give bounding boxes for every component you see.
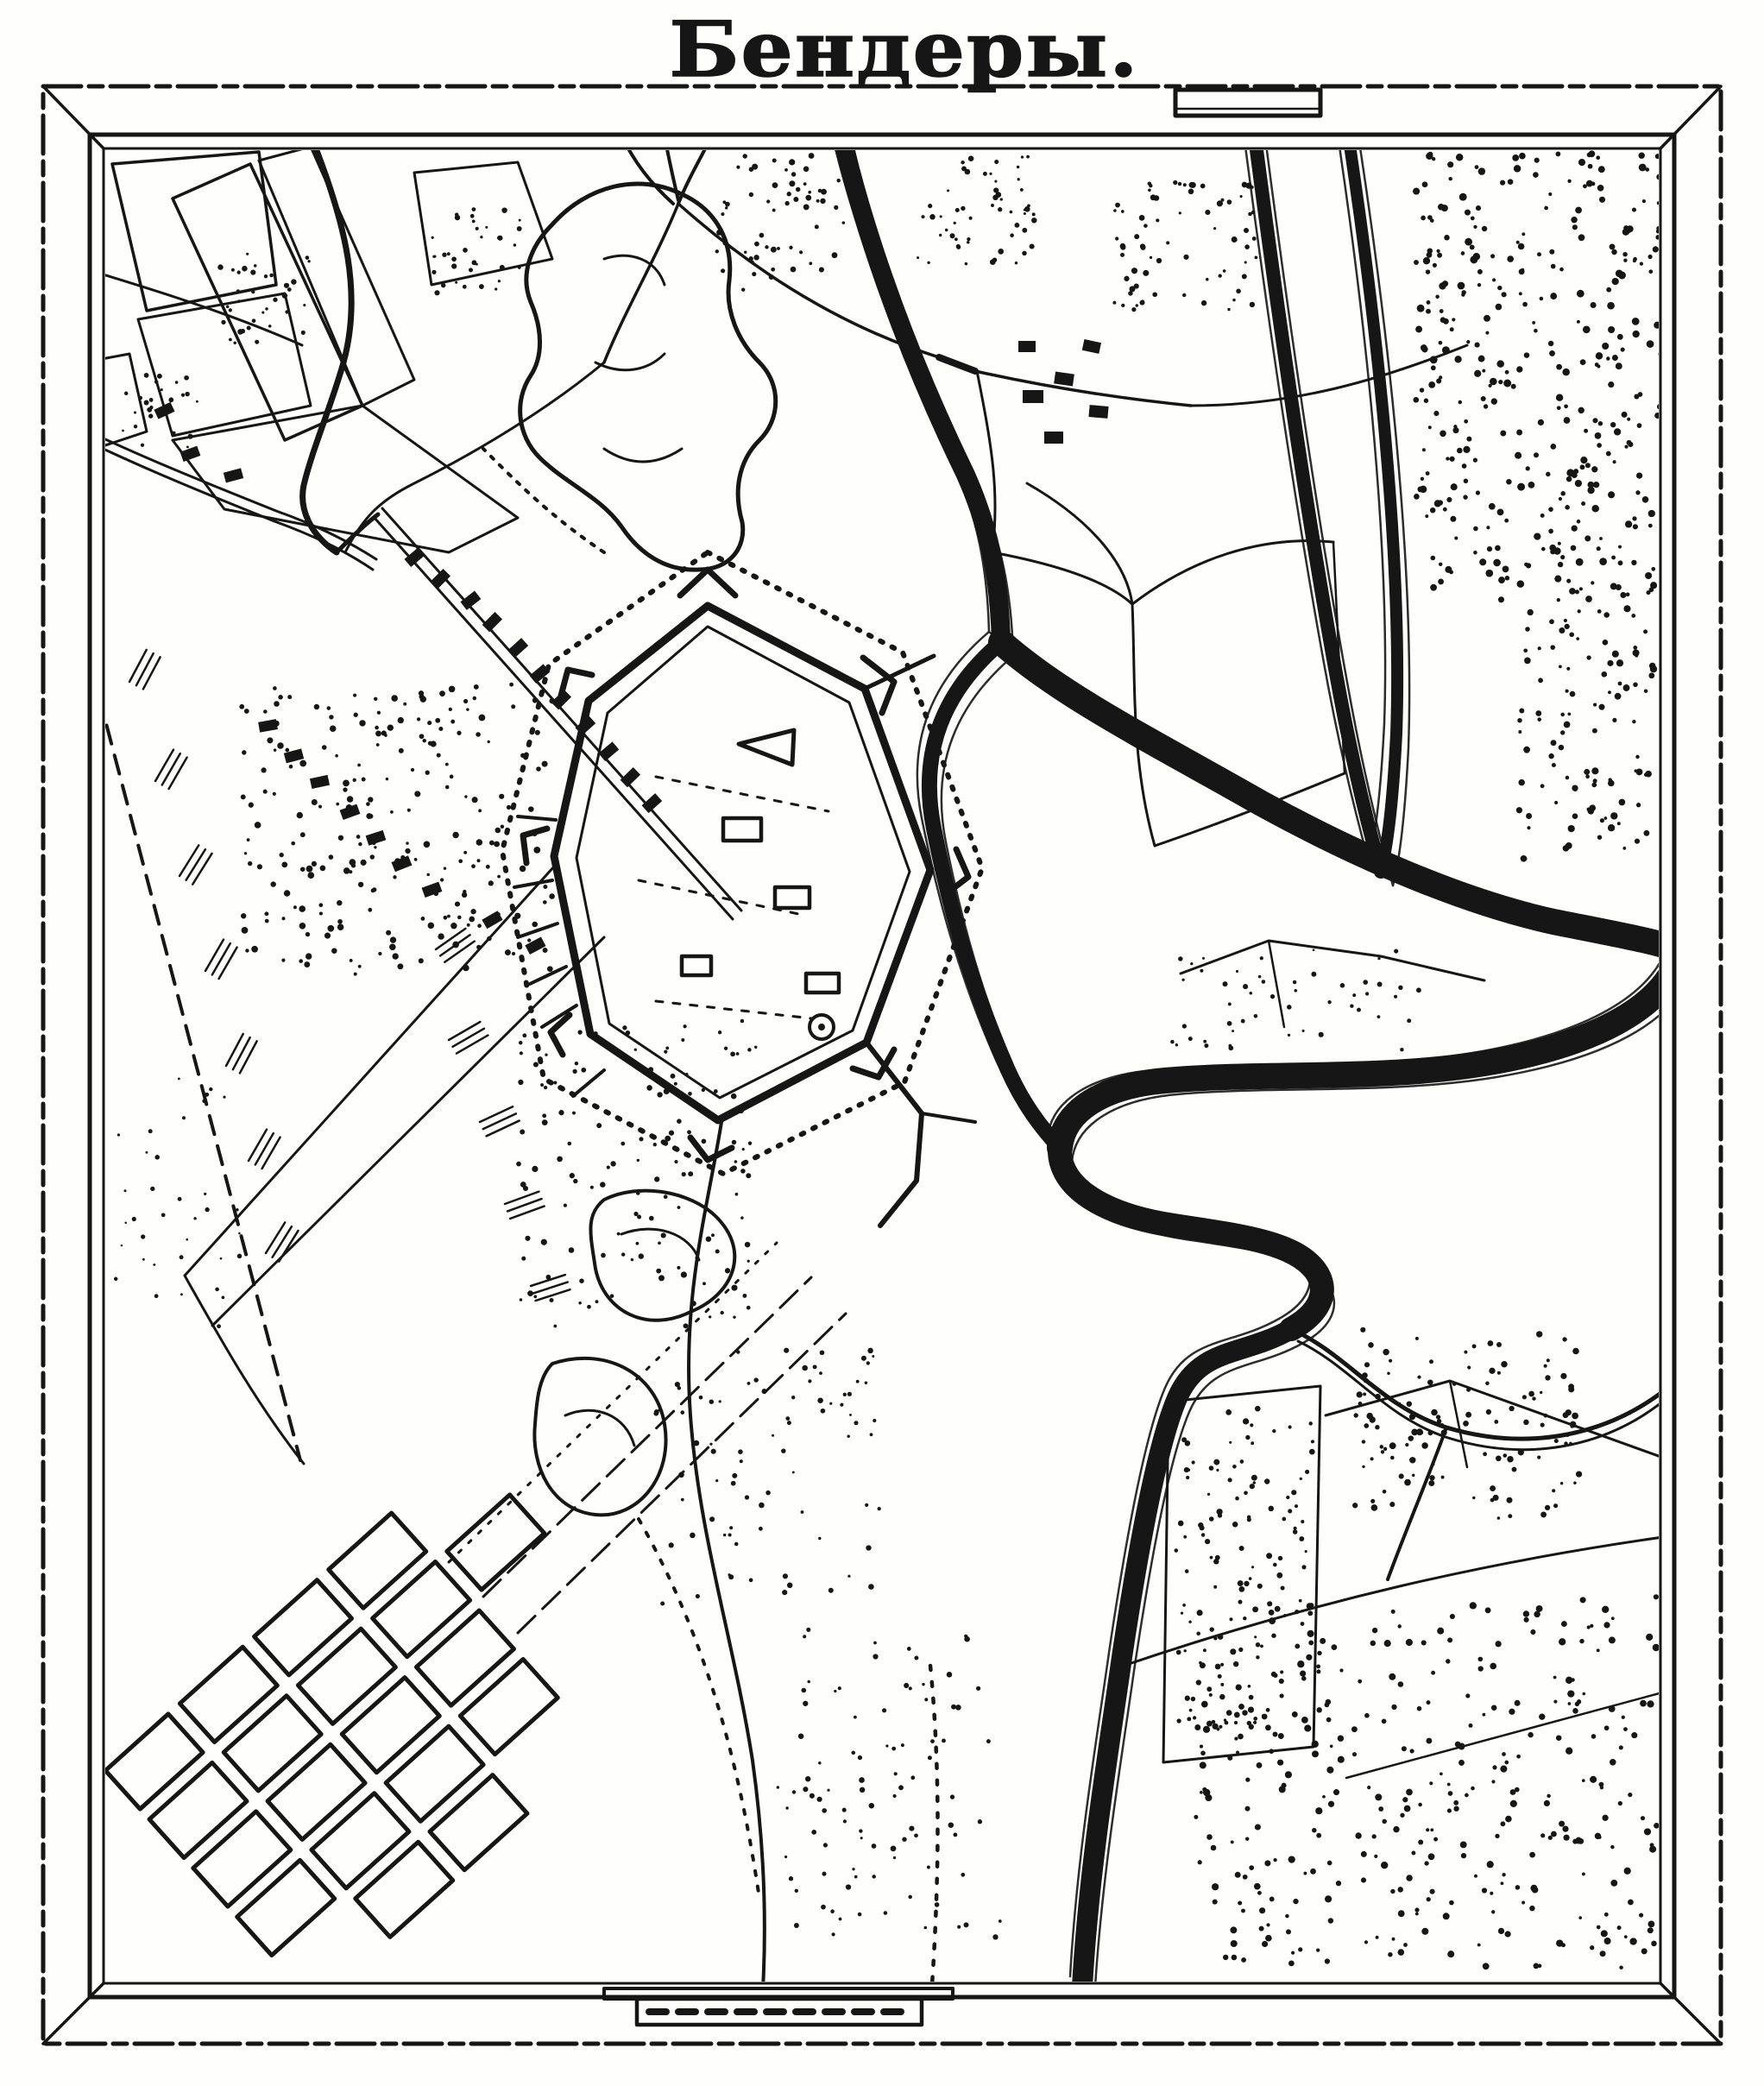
hachure bbox=[219, 948, 237, 979]
stipple-dot bbox=[306, 953, 312, 959]
stipple-dot bbox=[660, 1601, 665, 1605]
stipple-dot bbox=[486, 865, 490, 869]
stipple-dot bbox=[1309, 1449, 1315, 1455]
stipple-dot bbox=[1587, 482, 1594, 488]
stipple-dot bbox=[1273, 1563, 1277, 1567]
stipple-dot bbox=[808, 1379, 811, 1383]
stipple-dot bbox=[1500, 1766, 1507, 1773]
stipple-dot bbox=[1351, 1726, 1358, 1732]
stipple-dot bbox=[1632, 318, 1640, 325]
stipple-dot bbox=[1619, 799, 1626, 806]
stipple-dot bbox=[772, 182, 778, 188]
stipple-dot bbox=[653, 1143, 657, 1146]
stipple-dot bbox=[1586, 655, 1591, 659]
stipple-dot bbox=[1198, 1860, 1202, 1864]
stipple-dot bbox=[1240, 195, 1243, 198]
stipple-dot bbox=[1566, 476, 1572, 482]
stipple-dot bbox=[654, 1176, 659, 1182]
stipple-dot bbox=[1026, 155, 1030, 159]
stipple-dot bbox=[1209, 1465, 1214, 1471]
stipple-dot bbox=[596, 1123, 602, 1128]
stipple-dot bbox=[307, 872, 314, 879]
stipple-dot bbox=[1466, 340, 1470, 343]
stipple-dot bbox=[1553, 547, 1561, 555]
stipple-dot bbox=[1554, 576, 1561, 583]
stipple-dot bbox=[1478, 1666, 1484, 1671]
stipple-dot bbox=[682, 1172, 686, 1176]
stipple-dot bbox=[1411, 1429, 1418, 1436]
stipple-dot bbox=[1596, 352, 1603, 359]
stipple-dot bbox=[803, 1701, 808, 1706]
stipple-dot bbox=[1559, 745, 1565, 751]
stipple-dot bbox=[1576, 558, 1584, 566]
stipple-dot bbox=[148, 1129, 153, 1133]
stipple-dot bbox=[1238, 1600, 1242, 1604]
stipple-dot bbox=[961, 206, 965, 211]
stipple-dot bbox=[1627, 418, 1630, 421]
stipple-dot bbox=[1313, 948, 1315, 951]
stipple-dot bbox=[1486, 1409, 1491, 1415]
stipple-dot bbox=[141, 444, 144, 447]
stipple-dot bbox=[1269, 1617, 1276, 1624]
stipple-dot bbox=[132, 1217, 136, 1221]
stipple-dot bbox=[1572, 224, 1578, 230]
stipple-dot bbox=[688, 1092, 692, 1096]
stipple-dot bbox=[1431, 1671, 1435, 1675]
hachure bbox=[136, 653, 154, 685]
stipple-dot bbox=[1623, 259, 1627, 262]
stipple-dot bbox=[1597, 185, 1604, 192]
stipple-dot bbox=[1526, 813, 1532, 819]
stipple-dot bbox=[1295, 1643, 1300, 1648]
stipple-dot bbox=[336, 803, 339, 806]
stipple-dot bbox=[318, 903, 323, 907]
stipple-dot bbox=[769, 274, 774, 280]
stipple-dot bbox=[633, 1212, 638, 1216]
stipple-dot bbox=[785, 1416, 790, 1421]
town-block bbox=[342, 1678, 439, 1773]
stipple-dot bbox=[278, 695, 283, 700]
stipple-dot bbox=[1576, 1471, 1582, 1477]
stipple-dot bbox=[1404, 1806, 1411, 1812]
stipple-dot bbox=[1466, 138, 1471, 142]
stipple-dot bbox=[777, 1786, 779, 1788]
stipple-dot bbox=[1648, 1921, 1655, 1928]
stipple-dot bbox=[350, 959, 353, 962]
stipple-dot bbox=[1303, 1872, 1307, 1875]
stipple-dot bbox=[671, 1074, 676, 1079]
stipple-dot bbox=[1491, 1780, 1495, 1783]
stipple-dot bbox=[1449, 126, 1453, 130]
stipple-dot bbox=[1584, 429, 1588, 433]
stipple-dot bbox=[1621, 348, 1625, 352]
stipple-dot bbox=[1597, 546, 1601, 551]
stipple-dot bbox=[1267, 1601, 1272, 1606]
stipple-dot bbox=[872, 1875, 875, 1878]
stipple-dot bbox=[1576, 637, 1579, 640]
stipple-dot bbox=[1528, 1732, 1533, 1737]
stipple-dot bbox=[1603, 612, 1610, 618]
stipple-dot bbox=[914, 1833, 918, 1837]
stipple-dot bbox=[1603, 1622, 1610, 1628]
stipple-dot bbox=[1000, 198, 1003, 200]
stipple-dot bbox=[1216, 1469, 1219, 1472]
stipple-dot bbox=[939, 234, 942, 236]
stipple-dot bbox=[648, 1067, 653, 1072]
stipple-dot bbox=[1203, 1726, 1210, 1733]
stipple-dot bbox=[1271, 1633, 1276, 1637]
stipple-dot bbox=[1266, 1708, 1270, 1712]
stipple-dot bbox=[449, 686, 456, 693]
stipple-dot bbox=[1564, 404, 1568, 408]
stipple-dot bbox=[1428, 1853, 1435, 1860]
stipple-dot bbox=[244, 709, 249, 714]
stipple-dot bbox=[1250, 1423, 1253, 1427]
stipple-dot bbox=[384, 734, 387, 736]
hachure bbox=[205, 940, 224, 971]
stipple-dot bbox=[1618, 1801, 1622, 1806]
stipple-dot bbox=[1376, 1936, 1379, 1939]
stipple-dot bbox=[1461, 251, 1465, 255]
stipple-dot bbox=[1407, 1018, 1411, 1023]
stipple-dot bbox=[795, 1889, 798, 1893]
stipple-dot bbox=[1612, 355, 1618, 361]
stipple-dot bbox=[471, 864, 476, 868]
stipple-dot bbox=[1648, 524, 1653, 528]
stipple-dot bbox=[1518, 243, 1525, 250]
stipple-dot bbox=[1580, 1597, 1586, 1603]
stipple-dot bbox=[1371, 1504, 1378, 1511]
stipple-dot bbox=[269, 274, 274, 278]
stipple-dot bbox=[1648, 255, 1653, 259]
stipple-dot bbox=[1288, 1425, 1292, 1428]
stipple-dot bbox=[694, 1440, 700, 1446]
stipple-dot bbox=[1537, 252, 1541, 256]
stipple-dot bbox=[914, 1656, 918, 1661]
stipple-dot bbox=[1516, 807, 1522, 813]
stipple-dot bbox=[1491, 398, 1497, 404]
stipple-dot bbox=[1291, 1951, 1295, 1955]
stipple-dot bbox=[1651, 567, 1655, 571]
stipple-dot bbox=[1552, 763, 1556, 767]
stipple-dot bbox=[955, 208, 960, 212]
stipple-dot bbox=[1238, 1648, 1243, 1652]
stipple-dot bbox=[839, 1918, 842, 1921]
road bbox=[185, 1276, 304, 1464]
stipple-dot bbox=[1262, 1941, 1268, 1947]
stipple-dot bbox=[522, 1033, 526, 1037]
stipple-dot bbox=[1121, 304, 1125, 307]
stipple-dot bbox=[1641, 1948, 1647, 1954]
field-boundary bbox=[173, 406, 518, 552]
stipple-dot bbox=[821, 189, 827, 195]
stipple-dot bbox=[1490, 1892, 1493, 1895]
stipple-dot bbox=[501, 825, 504, 829]
stipple-dot bbox=[428, 741, 432, 746]
stipple-dot bbox=[1472, 1344, 1477, 1348]
stipple-dot bbox=[424, 841, 431, 848]
stipple-dot bbox=[830, 1909, 835, 1913]
hachure bbox=[279, 1231, 298, 1262]
stipple-dot bbox=[242, 927, 249, 934]
stipple-dot bbox=[1247, 1516, 1251, 1520]
stipple-dot bbox=[1589, 804, 1596, 811]
stipple-dot bbox=[732, 1473, 737, 1478]
stipple-dot bbox=[1176, 1650, 1181, 1655]
stipple-dot bbox=[1607, 660, 1613, 666]
stipple-dot bbox=[1540, 1511, 1547, 1517]
stipple-dot bbox=[965, 169, 971, 175]
stipple-dot bbox=[1234, 1711, 1240, 1717]
stipple-dot bbox=[1413, 397, 1419, 403]
stipple-dot bbox=[587, 1305, 591, 1309]
stipple-dot bbox=[910, 1775, 915, 1780]
stipple-dot bbox=[878, 1507, 881, 1510]
stipple-cluster bbox=[1112, 180, 1257, 312]
stipple-dot bbox=[1597, 609, 1602, 614]
stipple-dot bbox=[1370, 1499, 1375, 1503]
stipple-dot bbox=[749, 256, 753, 261]
stipple-dot bbox=[434, 892, 438, 896]
stipple-dot bbox=[1319, 1032, 1324, 1037]
stipple-dot bbox=[1560, 1482, 1563, 1484]
stipple-dot bbox=[1502, 1873, 1505, 1876]
stipple-dot bbox=[1185, 1569, 1189, 1573]
hachure bbox=[273, 1226, 292, 1257]
field-line bbox=[1132, 541, 1333, 604]
fields-east bbox=[977, 371, 1484, 1027]
stipple-dot bbox=[1466, 437, 1471, 442]
stipple-dot bbox=[432, 255, 435, 258]
stipple-dot bbox=[1192, 1460, 1195, 1464]
road bbox=[975, 371, 1191, 406]
stipple-dot bbox=[1505, 1816, 1512, 1823]
stipple-dot bbox=[1525, 627, 1530, 632]
stipple-dot bbox=[1354, 1413, 1358, 1417]
stipple-dot bbox=[513, 243, 517, 247]
stipple-dot bbox=[1582, 1872, 1585, 1875]
stipple-dot bbox=[511, 704, 515, 709]
stipple-dot bbox=[1442, 346, 1450, 354]
stipple-dot bbox=[723, 1534, 726, 1536]
stipple-dot bbox=[1288, 1509, 1292, 1513]
stipple-dot bbox=[1181, 979, 1184, 981]
stipple-dot bbox=[1441, 1429, 1447, 1435]
stipple-dot bbox=[1557, 598, 1560, 602]
stipple-dot bbox=[144, 400, 149, 406]
stipple-dot bbox=[1578, 159, 1585, 166]
stipple-dot bbox=[1550, 444, 1556, 450]
stipple-dot bbox=[1431, 1409, 1438, 1416]
stipple-dot bbox=[444, 916, 448, 920]
field-boundary bbox=[414, 162, 552, 285]
stipple-dot bbox=[930, 1739, 935, 1743]
stipple-dot bbox=[1320, 1638, 1326, 1644]
stipple-dot bbox=[1249, 1724, 1254, 1730]
stipple-dot bbox=[1184, 1649, 1187, 1652]
stipple-dot bbox=[532, 1166, 538, 1172]
stipple-dot bbox=[528, 806, 534, 812]
stipple-dot bbox=[202, 1099, 206, 1103]
stipple-dot bbox=[1463, 495, 1467, 499]
stipple-dot bbox=[237, 299, 241, 303]
stipple-dot bbox=[1624, 1868, 1631, 1875]
suburb-west bbox=[154, 402, 662, 955]
stipple-dot bbox=[1577, 520, 1581, 524]
stipple-dot bbox=[1585, 463, 1591, 468]
stipple-dot bbox=[1364, 1423, 1369, 1428]
stipple-dot bbox=[1615, 693, 1622, 700]
stipple-dot bbox=[782, 1590, 787, 1595]
fortress-buildings bbox=[639, 730, 839, 1039]
stipple-dot bbox=[1381, 1450, 1384, 1453]
stipple-dot bbox=[1412, 1474, 1414, 1477]
stipple-dot bbox=[1260, 1645, 1263, 1648]
stipple-dot bbox=[1316, 1664, 1320, 1668]
stipple-dot bbox=[617, 1232, 621, 1236]
stipple-dot bbox=[1496, 360, 1503, 367]
stipple-dot bbox=[1497, 508, 1504, 515]
stipple-dot bbox=[1139, 215, 1145, 221]
stipple-dot bbox=[1505, 576, 1510, 581]
stipple-dot bbox=[1617, 334, 1623, 340]
house bbox=[180, 446, 201, 462]
stipple-dot bbox=[1294, 1527, 1297, 1530]
stipple-dot bbox=[147, 407, 152, 413]
stipple-dot bbox=[1223, 1955, 1228, 1960]
stipple-dot bbox=[784, 168, 788, 172]
stipple-dot bbox=[1275, 1606, 1281, 1612]
stipple-dot bbox=[1186, 1476, 1189, 1479]
stipple-dot bbox=[784, 1856, 787, 1858]
stipple-dot bbox=[815, 224, 819, 229]
stipple-dot bbox=[1664, 184, 1670, 190]
stipple-dot bbox=[1030, 243, 1035, 249]
stipple-dot bbox=[1616, 269, 1623, 277]
stipple-dot bbox=[873, 1654, 878, 1659]
stipple-dot bbox=[735, 1193, 739, 1196]
stipple-dot bbox=[711, 1233, 715, 1237]
stipple-dot bbox=[329, 854, 334, 860]
stipple-dot bbox=[499, 794, 504, 799]
stipple-dot bbox=[1420, 388, 1424, 392]
stipple-dot bbox=[1536, 1605, 1543, 1612]
stipple-dot bbox=[487, 936, 492, 942]
ravine-squiggle bbox=[604, 255, 665, 285]
stipple-dot bbox=[1571, 217, 1577, 223]
stipple-dot bbox=[1564, 1835, 1570, 1841]
house bbox=[1044, 432, 1063, 444]
stipple-dot bbox=[419, 734, 425, 739]
stipple-dot bbox=[1457, 448, 1463, 454]
hachure-group bbox=[226, 1034, 257, 1074]
stipple-dot bbox=[1241, 1957, 1246, 1963]
stipple-dot bbox=[1654, 1594, 1659, 1599]
stipple-dot bbox=[265, 307, 268, 310]
stipple-dot bbox=[1571, 1678, 1574, 1681]
stipple-dot bbox=[1548, 192, 1552, 196]
town-block bbox=[386, 1726, 483, 1821]
stipple-dot bbox=[1287, 1005, 1292, 1010]
stipple-dot bbox=[1219, 274, 1222, 277]
stipple-dot bbox=[420, 696, 427, 703]
stipple-dot bbox=[1204, 1043, 1208, 1048]
stipple-dot bbox=[1221, 199, 1225, 202]
stipple-dot bbox=[527, 938, 531, 942]
stipple-dot bbox=[1017, 166, 1019, 168]
stipple-dot bbox=[533, 1295, 537, 1299]
stipple-dot bbox=[1515, 452, 1521, 459]
stipple-dot bbox=[1512, 154, 1519, 161]
hachure-group bbox=[180, 845, 212, 884]
stipple-dot bbox=[472, 207, 476, 211]
riverside-wall bbox=[922, 1113, 975, 1122]
stipple-dot bbox=[501, 207, 507, 212]
stipple-dot bbox=[961, 161, 964, 164]
stipple-dot bbox=[1215, 1664, 1221, 1670]
stipple-dot bbox=[739, 1108, 744, 1113]
stipple-dot bbox=[463, 965, 469, 972]
stipple-dot bbox=[1262, 980, 1266, 984]
stipple-dot bbox=[473, 696, 476, 700]
stipple-dot bbox=[337, 919, 343, 924]
stipple-dot bbox=[358, 842, 362, 846]
stipple-dot bbox=[734, 1160, 738, 1163]
stipple-dot bbox=[961, 1873, 965, 1877]
stipple-dot bbox=[785, 1806, 788, 1809]
stipple-dot bbox=[1667, 806, 1671, 810]
stipple-dot bbox=[1486, 526, 1490, 529]
stipple-dot bbox=[532, 922, 538, 928]
stipple-dot bbox=[1503, 1453, 1508, 1458]
stipple-dot bbox=[568, 1142, 572, 1146]
stipple-dot bbox=[1560, 730, 1565, 734]
stipple-dot bbox=[1193, 1716, 1196, 1719]
stipple-dot bbox=[397, 963, 403, 969]
stipple-dot bbox=[1301, 1622, 1305, 1626]
stipple-dot bbox=[354, 713, 358, 717]
stipple-dot bbox=[1569, 1442, 1572, 1446]
stipple-dot bbox=[976, 1686, 980, 1691]
stipple-dot bbox=[375, 730, 381, 736]
river-channels bbox=[834, 97, 1681, 1987]
stipple-cluster bbox=[1413, 120, 1677, 603]
stipple-dot bbox=[765, 245, 768, 249]
stipple-dot bbox=[1617, 822, 1621, 825]
stipple-dot bbox=[1262, 1714, 1268, 1720]
stipple-dot bbox=[664, 1050, 667, 1054]
stipple-dot bbox=[882, 1708, 886, 1712]
stipple-dot bbox=[772, 1434, 774, 1437]
stipple-dot bbox=[1458, 282, 1465, 290]
stipple-dot bbox=[285, 748, 289, 753]
stipple-dot bbox=[1206, 1834, 1213, 1840]
stipple-dot bbox=[577, 1030, 582, 1034]
stipple-dot bbox=[860, 1837, 863, 1839]
stipple-dot bbox=[740, 1459, 743, 1463]
stipple-dot bbox=[1405, 1443, 1408, 1446]
stipple-dot bbox=[297, 812, 303, 818]
stipple-dot bbox=[1299, 1536, 1304, 1541]
stipple-dot bbox=[1523, 747, 1530, 753]
stipple-dot bbox=[1370, 1457, 1374, 1460]
stipple-dot bbox=[1375, 1793, 1382, 1800]
stipple-dot bbox=[1534, 533, 1540, 539]
stipple-dot bbox=[242, 750, 246, 754]
stipple-dot bbox=[338, 835, 343, 841]
building bbox=[682, 956, 711, 975]
stipple-dot bbox=[610, 1161, 615, 1166]
